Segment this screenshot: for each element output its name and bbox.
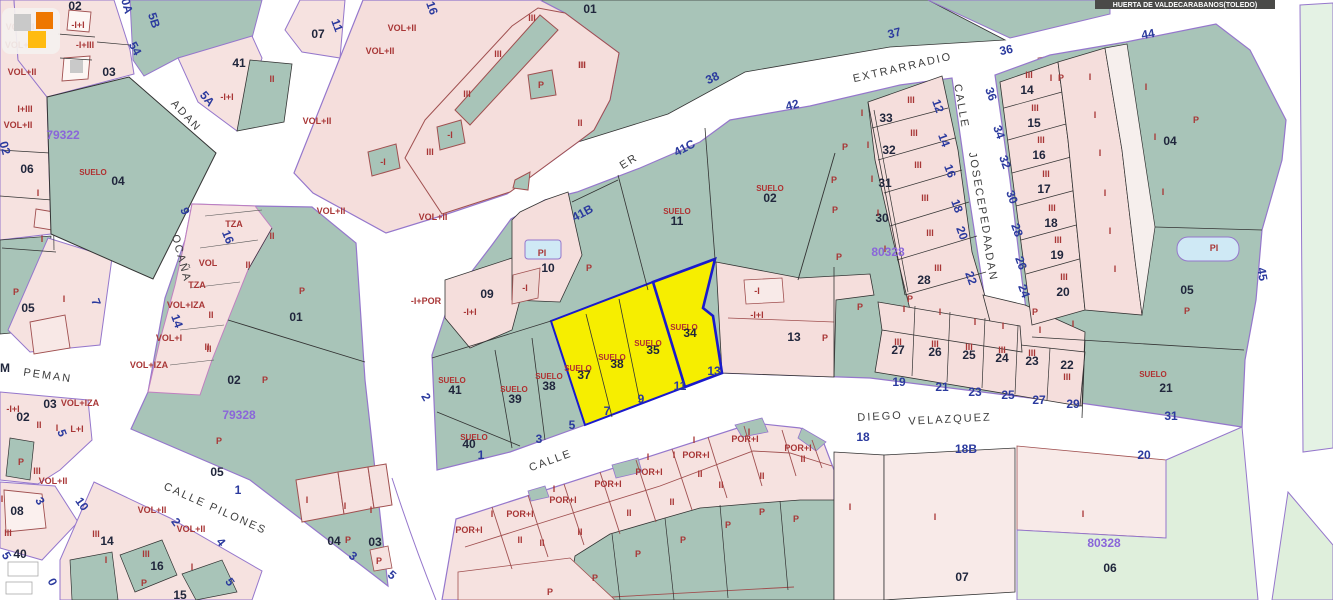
svg-text:III: III xyxy=(1037,135,1045,145)
svg-text:POR+I: POR+I xyxy=(682,450,709,460)
svg-text:I: I xyxy=(647,452,650,462)
svg-text:29: 29 xyxy=(1066,397,1080,411)
svg-text:VOL+II: VOL+II xyxy=(419,212,448,222)
svg-text:18: 18 xyxy=(856,430,870,444)
svg-text:II: II xyxy=(669,497,674,507)
svg-text:3: 3 xyxy=(536,432,543,446)
svg-text:II: II xyxy=(206,344,211,354)
svg-text:I: I xyxy=(974,317,977,327)
svg-text:III: III xyxy=(463,89,471,99)
svg-text:PI: PI xyxy=(538,248,547,258)
svg-text:III: III xyxy=(1025,70,1033,80)
svg-text:I: I xyxy=(849,502,852,512)
svg-text:III: III xyxy=(1060,272,1068,282)
svg-text:15: 15 xyxy=(1027,116,1041,130)
svg-text:04: 04 xyxy=(327,534,341,548)
svg-text:I: I xyxy=(37,188,40,198)
svg-text:19: 19 xyxy=(892,375,906,389)
svg-text:33: 33 xyxy=(879,111,893,125)
svg-text:18B: 18B xyxy=(955,442,977,456)
svg-text:03: 03 xyxy=(102,65,116,79)
svg-text:I: I xyxy=(673,450,676,460)
svg-text:II: II xyxy=(36,420,41,430)
svg-text:38: 38 xyxy=(610,357,624,371)
svg-text:I: I xyxy=(370,505,373,515)
svg-text:II: II xyxy=(269,231,274,241)
svg-text:L+I: L+I xyxy=(70,424,83,434)
svg-text:III: III xyxy=(1054,235,1062,245)
svg-text:-I+POR: -I+POR xyxy=(411,296,442,306)
svg-text:-I+III: -I+III xyxy=(76,40,94,50)
svg-text:09: 09 xyxy=(480,287,494,301)
svg-text:VOL+IZA: VOL+IZA xyxy=(167,300,206,310)
svg-text:II: II xyxy=(759,471,764,481)
svg-text:P: P xyxy=(1032,307,1038,317)
svg-text:VOL+II: VOL+II xyxy=(39,476,68,486)
svg-text:01: 01 xyxy=(583,2,597,16)
svg-text:13: 13 xyxy=(787,330,801,344)
svg-text:VOL+II: VOL+II xyxy=(366,46,395,56)
svg-text:III: III xyxy=(33,466,41,476)
svg-text:40: 40 xyxy=(462,437,476,451)
svg-text:I: I xyxy=(871,174,874,184)
svg-text:VOL+II: VOL+II xyxy=(138,505,167,515)
svg-text:04: 04 xyxy=(111,174,125,188)
svg-text:11: 11 xyxy=(671,214,684,228)
svg-text:P: P xyxy=(262,375,268,385)
svg-text:II: II xyxy=(626,508,631,518)
svg-text:79328: 79328 xyxy=(222,408,256,422)
svg-text:44: 44 xyxy=(1140,26,1156,42)
svg-text:II: II xyxy=(539,538,544,548)
svg-text:I: I xyxy=(1104,188,1107,198)
svg-text:20: 20 xyxy=(1056,285,1070,299)
svg-text:I: I xyxy=(748,427,751,437)
svg-text:P: P xyxy=(725,520,731,530)
svg-text:II: II xyxy=(577,527,582,537)
svg-text:28: 28 xyxy=(917,273,931,287)
svg-text:79322: 79322 xyxy=(46,128,80,142)
svg-text:03: 03 xyxy=(43,397,57,411)
svg-text:POR+I: POR+I xyxy=(594,479,621,489)
svg-text:I: I xyxy=(1039,325,1042,335)
svg-text:05: 05 xyxy=(1180,283,1194,297)
svg-text:VOL+II: VOL+II xyxy=(388,23,417,33)
svg-text:32: 32 xyxy=(882,143,896,157)
svg-text:TZA: TZA xyxy=(188,280,206,290)
svg-text:I: I xyxy=(1099,148,1102,158)
svg-text:9: 9 xyxy=(638,392,645,406)
svg-text:5: 5 xyxy=(569,418,576,432)
svg-text:34: 34 xyxy=(683,326,697,340)
svg-text:I: I xyxy=(306,495,309,505)
svg-text:SUELO: SUELO xyxy=(1139,370,1167,379)
svg-text:P: P xyxy=(759,507,765,517)
svg-text:21: 21 xyxy=(1159,381,1173,395)
svg-text:II: II xyxy=(718,480,723,490)
svg-text:02: 02 xyxy=(763,191,777,205)
svg-text:P: P xyxy=(376,556,382,566)
svg-text:I: I xyxy=(1072,319,1075,329)
svg-text:I: I xyxy=(934,512,937,522)
svg-text:80328: 80328 xyxy=(1087,536,1121,550)
svg-text:P: P xyxy=(592,573,598,583)
svg-text:I: I xyxy=(1114,264,1117,274)
svg-text:PI: PI xyxy=(1210,243,1219,253)
svg-text:P: P xyxy=(842,142,848,152)
svg-text:VOL+IZA: VOL+IZA xyxy=(61,398,100,408)
svg-text:I: I xyxy=(191,562,194,572)
svg-text:SUELO: SUELO xyxy=(79,168,107,177)
svg-text:41: 41 xyxy=(232,56,246,70)
svg-text:07: 07 xyxy=(311,27,325,41)
svg-text:P: P xyxy=(680,535,686,545)
svg-text:HUERTA DE VALDECARABANOS(TOLED: HUERTA DE VALDECARABANOS(TOLEDO) xyxy=(1113,2,1257,9)
svg-text:VOL: VOL xyxy=(199,258,218,268)
svg-text:I+III: I+III xyxy=(17,104,32,114)
svg-text:I: I xyxy=(1082,509,1085,519)
svg-text:06: 06 xyxy=(20,162,34,176)
svg-text:-I+I: -I+I xyxy=(750,310,763,320)
svg-text:VOL+II: VOL+II xyxy=(4,120,33,130)
svg-text:I: I xyxy=(877,208,880,218)
svg-text:P: P xyxy=(832,205,838,215)
svg-text:I: I xyxy=(105,555,108,565)
svg-text:II: II xyxy=(517,535,522,545)
svg-text:P: P xyxy=(1193,115,1199,125)
svg-text:I: I xyxy=(1094,110,1097,120)
svg-text:III: III xyxy=(142,549,150,559)
svg-text:04: 04 xyxy=(1163,134,1177,148)
svg-text:III: III xyxy=(965,342,973,352)
svg-text:VOL+II: VOL+II xyxy=(317,206,346,216)
svg-text:-I: -I xyxy=(754,286,760,296)
svg-text:21: 21 xyxy=(935,380,949,394)
svg-text:03: 03 xyxy=(368,535,382,549)
svg-text:P: P xyxy=(857,302,863,312)
svg-text:7: 7 xyxy=(604,404,611,418)
svg-text:P: P xyxy=(547,587,553,597)
svg-text:P: P xyxy=(831,175,837,185)
svg-text:07: 07 xyxy=(955,570,969,584)
svg-text:I: I xyxy=(903,304,906,314)
svg-text:-I: -I xyxy=(522,283,528,293)
svg-text:III: III xyxy=(894,337,902,347)
svg-text:25: 25 xyxy=(1001,388,1015,402)
svg-text:III: III xyxy=(578,60,586,70)
svg-text:38: 38 xyxy=(542,379,556,393)
svg-text:I: I xyxy=(63,294,66,304)
svg-text:III: III xyxy=(1048,203,1056,213)
svg-text:POR+I: POR+I xyxy=(784,443,811,453)
svg-text:-I+I: -I+I xyxy=(71,20,84,30)
svg-text:19: 19 xyxy=(1050,248,1064,262)
svg-text:05: 05 xyxy=(21,301,35,315)
svg-text:POR+I: POR+I xyxy=(635,467,662,477)
svg-text:III: III xyxy=(921,193,929,203)
svg-text:I: I xyxy=(491,509,494,519)
svg-text:I: I xyxy=(1,494,4,504)
svg-text:III: III xyxy=(907,95,915,105)
svg-text:POR+I: POR+I xyxy=(506,509,533,519)
svg-text:DIEGO: DIEGO xyxy=(857,410,903,424)
svg-text:III: III xyxy=(1031,103,1039,113)
svg-text:P: P xyxy=(345,535,351,545)
svg-text:II: II xyxy=(800,454,805,464)
svg-text:III: III xyxy=(1028,348,1036,358)
svg-text:1: 1 xyxy=(478,448,485,462)
svg-text:II: II xyxy=(208,310,213,320)
svg-text:10: 10 xyxy=(541,261,555,275)
svg-text:14: 14 xyxy=(100,534,114,548)
svg-text:16: 16 xyxy=(150,559,164,573)
svg-text:-I: -I xyxy=(380,157,386,167)
svg-text:-I+I: -I+I xyxy=(220,92,233,102)
svg-text:I: I xyxy=(939,307,942,317)
svg-text:31: 31 xyxy=(1164,409,1178,423)
svg-text:17: 17 xyxy=(1037,182,1051,196)
svg-text:39: 39 xyxy=(508,392,522,406)
svg-text:18: 18 xyxy=(1044,216,1058,230)
svg-text:III: III xyxy=(926,228,934,238)
svg-text:P: P xyxy=(538,80,544,90)
svg-text:P: P xyxy=(836,252,842,262)
svg-text:I: I xyxy=(1002,321,1005,331)
svg-text:13: 13 xyxy=(707,364,721,378)
svg-text:I: I xyxy=(41,234,44,244)
svg-text:P: P xyxy=(13,287,19,297)
svg-text:I: I xyxy=(693,435,696,445)
svg-text:02: 02 xyxy=(68,0,82,13)
svg-text:08: 08 xyxy=(10,504,24,518)
svg-text:02: 02 xyxy=(16,410,30,424)
svg-text:14: 14 xyxy=(1020,83,1034,97)
svg-text:P: P xyxy=(1184,306,1190,316)
svg-text:P: P xyxy=(18,457,24,467)
svg-text:41: 41 xyxy=(448,383,462,397)
svg-text:I: I xyxy=(1154,132,1157,142)
svg-text:POR+I: POR+I xyxy=(731,434,758,444)
svg-text:III: III xyxy=(910,128,918,138)
svg-text:-I+I: -I+I xyxy=(463,307,476,317)
svg-text:40: 40 xyxy=(13,547,27,561)
svg-text:I: I xyxy=(1089,72,1092,82)
svg-text:15: 15 xyxy=(173,588,187,600)
svg-text:P: P xyxy=(822,333,828,343)
svg-text:VOL+II: VOL+II xyxy=(8,67,37,77)
svg-text:III: III xyxy=(1042,169,1050,179)
svg-text:P: P xyxy=(907,294,913,304)
svg-text:P: P xyxy=(1058,73,1064,83)
svg-text:I: I xyxy=(867,140,870,150)
svg-text:05: 05 xyxy=(210,465,224,479)
svg-text:II: II xyxy=(245,260,250,270)
svg-text:M: M xyxy=(0,361,10,375)
svg-text:I: I xyxy=(1162,187,1165,197)
svg-text:III: III xyxy=(494,49,502,59)
svg-text:II: II xyxy=(577,118,582,128)
svg-text:37: 37 xyxy=(577,368,591,382)
svg-text:I: I xyxy=(1109,226,1112,236)
svg-text:II: II xyxy=(269,74,274,84)
svg-text:P: P xyxy=(793,514,799,524)
svg-text:27: 27 xyxy=(1032,393,1046,407)
svg-text:POR+I: POR+I xyxy=(549,495,576,505)
svg-text:23: 23 xyxy=(968,385,982,399)
svg-text:III: III xyxy=(92,529,100,539)
svg-text:11: 11 xyxy=(674,379,687,393)
svg-text:III: III xyxy=(1063,372,1071,382)
svg-text:-I: -I xyxy=(447,130,453,140)
svg-text:P: P xyxy=(299,286,305,296)
svg-text:01: 01 xyxy=(289,310,303,324)
svg-text:III: III xyxy=(998,345,1006,355)
svg-text:35: 35 xyxy=(646,343,660,357)
svg-text:III: III xyxy=(528,13,536,23)
svg-text:VOL+IZA: VOL+IZA xyxy=(130,360,169,370)
svg-text:P: P xyxy=(586,263,592,273)
svg-text:80328: 80328 xyxy=(871,245,905,259)
svg-text:I: I xyxy=(861,108,864,118)
svg-text:I: I xyxy=(553,484,556,494)
svg-text:P: P xyxy=(635,549,641,559)
svg-text:TZA: TZA xyxy=(225,219,243,229)
svg-text:16: 16 xyxy=(1032,148,1046,162)
svg-text:II: II xyxy=(697,469,702,479)
svg-text:I: I xyxy=(1050,73,1053,83)
svg-text:III: III xyxy=(934,263,942,273)
svg-text:VOL+I: VOL+I xyxy=(156,333,182,343)
svg-text:III: III xyxy=(4,528,12,538)
svg-text:VOL+II: VOL+II xyxy=(177,524,206,534)
svg-text:III: III xyxy=(426,147,434,157)
svg-text:I: I xyxy=(344,501,347,511)
svg-text:POR+I: POR+I xyxy=(455,525,482,535)
svg-text:III: III xyxy=(914,160,922,170)
svg-text:31: 31 xyxy=(878,176,892,190)
svg-text:22: 22 xyxy=(1060,358,1074,372)
svg-text:06: 06 xyxy=(1103,561,1117,575)
svg-text:1: 1 xyxy=(235,483,242,497)
svg-text:02: 02 xyxy=(227,373,241,387)
svg-text:P: P xyxy=(141,578,147,588)
svg-text:P: P xyxy=(216,436,222,446)
svg-text:I: I xyxy=(1145,82,1148,92)
svg-text:III: III xyxy=(931,339,939,349)
svg-text:20: 20 xyxy=(1137,448,1151,462)
svg-text:VOL+II: VOL+II xyxy=(303,116,332,126)
svg-text:45: 45 xyxy=(1254,266,1270,282)
